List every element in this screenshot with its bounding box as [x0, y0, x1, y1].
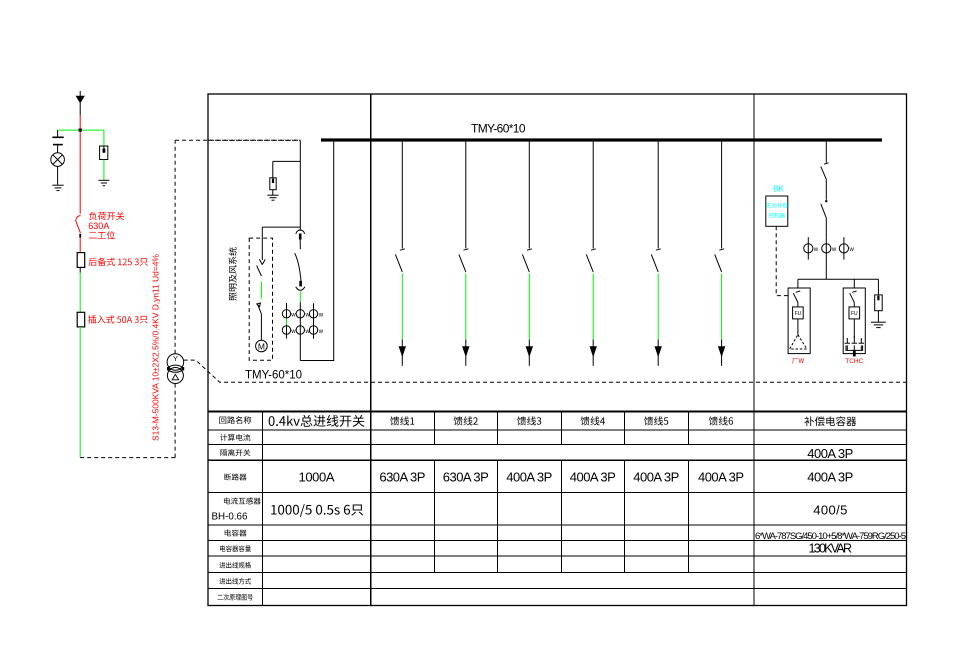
svg-text:w: w	[305, 329, 311, 335]
svg-text:S13-M-500KVA 10±2X2.5%/0.4KV D: S13-M-500KVA 10±2X2.5%/0.4KV D,yn11 Ud=4…	[151, 254, 161, 441]
svg-text:w: w	[305, 313, 311, 319]
svg-text:130KVAR: 130KVAR	[809, 542, 853, 556]
svg-text:400A 3P: 400A 3P	[633, 470, 679, 485]
svg-text:w: w	[849, 247, 855, 253]
svg-text:1000A: 1000A	[299, 470, 335, 485]
svg-text:630A 3P: 630A 3P	[379, 470, 425, 485]
svg-text:FU: FU	[851, 311, 858, 317]
svg-text:Y: Y	[173, 354, 178, 363]
svg-text:TMY-60*10: TMY-60*10	[245, 370, 302, 382]
svg-text:w: w	[318, 313, 324, 319]
svg-text:w: w	[318, 329, 324, 335]
svg-text:TCHC: TCHC	[845, 358, 863, 365]
svg-text:400A 3P: 400A 3P	[570, 470, 616, 485]
svg-text:400A 3P: 400A 3P	[698, 470, 744, 485]
svg-text:400A 3P: 400A 3P	[807, 446, 853, 461]
svg-text:630A 3P: 630A 3P	[443, 470, 489, 485]
svg-text:630A: 630A	[88, 221, 109, 231]
svg-text:6*WA-787SG/450-10+5/8*WA-759RG: 6*WA-787SG/450-10+5/8*WA-759RG/250-5	[755, 531, 906, 542]
svg-text:400A 3P: 400A 3P	[807, 470, 853, 485]
svg-text:w: w	[290, 313, 296, 319]
svg-text:400/5: 400/5	[813, 503, 847, 518]
svg-text:TMY-60*10: TMY-60*10	[471, 122, 526, 136]
svg-text:M: M	[258, 341, 265, 351]
svg-text:w: w	[290, 329, 296, 335]
svg-text:FU: FU	[795, 311, 802, 317]
svg-text:w: w	[813, 247, 819, 253]
svg-text:w: w	[831, 247, 837, 253]
svg-text:BH-0.66: BH-0.66	[212, 512, 248, 523]
svg-text:BK: BK	[773, 185, 784, 194]
svg-text:400A 3P: 400A 3P	[506, 470, 552, 485]
